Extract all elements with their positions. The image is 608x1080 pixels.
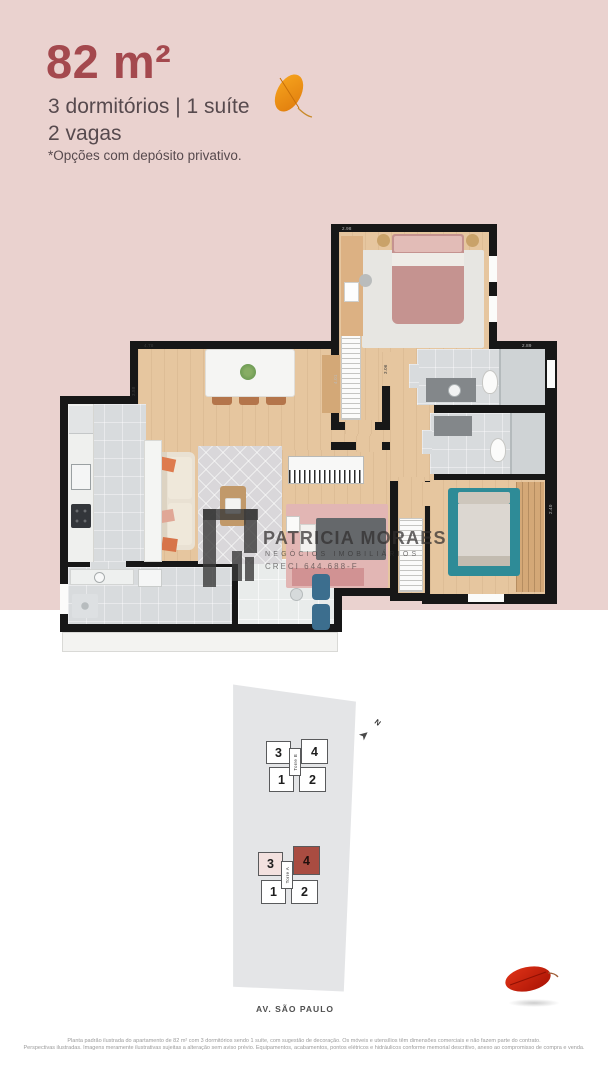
door-bathroom-1 [409,364,419,388]
dim-corridor: 4.01 [333,374,338,384]
window-bedroom-2 [468,594,504,602]
tower-a-footprint: 3 4 1 2 Torre A [258,848,320,906]
tower-b-unit-2: 2 [299,767,326,792]
disclaimer-line-2: Perspectivas ilustradas. Imagens meramen… [20,1045,588,1052]
tower-a-unit-4-highlighted: 4 [293,846,320,875]
watermark-logo-bar-3 [244,509,257,553]
site-plan-lot [225,683,360,993]
kitchen-sink [71,464,91,490]
sofa-pillow-3 [161,537,178,552]
door-bedroom-1 [356,436,382,452]
watermark-name: PATRICIA MORAES [263,528,447,549]
bath1-shower-glass [499,349,501,405]
tower-a-label: Torre A [285,867,290,883]
bath2-toilet [490,438,506,462]
bath1-toilet [482,370,498,394]
kitchen-cooktop [71,504,91,528]
features-line-2: 2 vagas [48,122,122,146]
door-bathroom-2 [422,430,432,454]
tower-b-label: Torre B [293,754,298,771]
balcony-lounge-2 [312,604,330,630]
bath2-shower-glass [510,413,512,474]
tower-a-unit-3: 3 [258,852,283,876]
window-suite-1 [489,256,497,282]
suite-bed-sheet [392,253,464,266]
bedroom1-piano [288,456,364,484]
bedroom2-wardrobe [516,482,544,592]
kitchen-island [144,440,162,562]
tower-b-unit-3: 3 [266,741,291,764]
kitchen-fridge [69,406,93,434]
dim-suite: 2.98 [342,226,352,231]
suite-chair [359,274,372,287]
dim-bedroom2: 2.40 [548,504,553,514]
suite-laptop [344,282,359,302]
watermark-subtitle: NEGÓCIOS IMOBILIÁRIOS [265,551,419,558]
bedroom2-bed [448,488,520,576]
balcony-table [290,588,303,601]
watermark-logo-bar-4 [232,551,242,581]
door-bedroom-2 [422,482,432,506]
window-suite-2 [489,296,497,322]
bath1-sink [448,384,461,397]
watermark-creci: CRECI 644.688-F [265,562,359,571]
dim-living-height: 3.58 [131,386,136,396]
tower-a-core: Torre A [281,861,293,889]
suite-bed [392,234,464,324]
bedroom2-bed-throw [458,556,510,566]
red-leaf-icon [502,960,560,1002]
tower-b-footprint: 3 4 1 2 Torre B [266,738,328,796]
door-corridor [345,420,375,434]
street-label: AV. SÃO PAULO [215,1004,375,1014]
page-title: 82 m² [46,34,171,89]
dim-hall: 3.06 [383,364,388,374]
options-note: *Opções com depósito privativo. [48,148,242,163]
sideboard [322,355,340,413]
terrace-rim [62,632,338,652]
washing-machine [72,594,98,618]
laundry-tank [138,569,162,587]
window-laundry [60,584,68,614]
bath2-shower [512,413,545,474]
bedroom2-bed-mattress [458,504,510,562]
dining-plant [240,364,256,380]
bedroom2-bed-pillows [458,492,510,504]
north-indicator: ➤ N [357,718,387,748]
orange-leaf-icon [264,72,320,122]
suite-nightstand-right [466,234,479,247]
watermark-logo-bar-5 [245,557,254,581]
dim-living-width: 4.78 [144,343,154,348]
flyer-page: 82 m² 3 dormitórios | 1 suíte 2 vagas *O… [0,0,608,1080]
bedroom1-piano-keys [289,470,363,483]
tower-b-unit-4: 4 [301,739,328,764]
dim-bath1: 2.89 [522,343,532,348]
north-arrow-icon: ➤ [356,726,373,743]
suite-bed-pillows [394,236,462,252]
north-label: N [373,717,383,727]
window-bathroom-1 [547,360,555,388]
suite-nightstand-left [377,234,390,247]
tower-a-unit-2: 2 [291,880,318,904]
features-line-1: 3 dormitórios | 1 suíte [48,95,250,119]
tower-b-core: Torre B [289,748,301,776]
floor-plan: 4.78 3.58 2.98 2.89 3.06 2.40 4.01 PATRI… [60,224,560,660]
balcony-lounge-1 [312,574,330,600]
bath2-vanity [434,416,472,436]
bath1-shower [501,349,545,405]
laundry-sink [94,572,105,583]
watermark-logo-bar-1 [203,509,216,587]
disclaimer-line-1: Planta padrão ilustrada do apartamento d… [20,1038,588,1045]
